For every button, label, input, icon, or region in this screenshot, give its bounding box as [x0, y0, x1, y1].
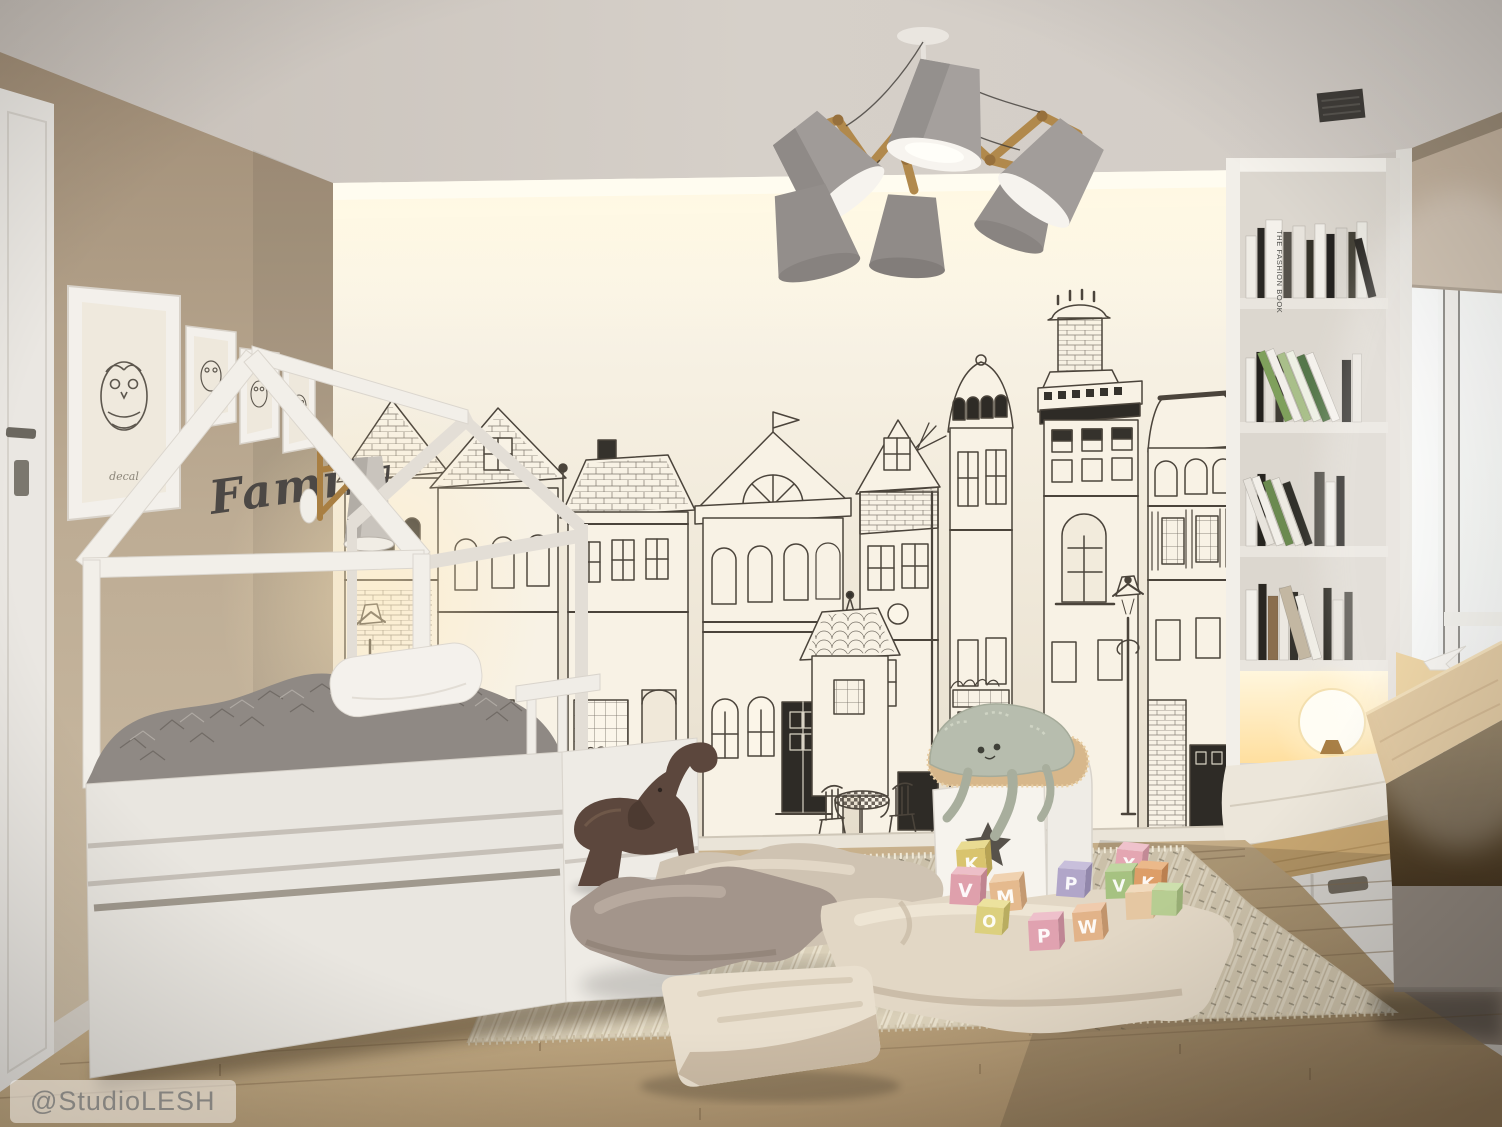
watermark-badge: @StudioLESH	[10, 1080, 236, 1123]
kids-bedroom-render: { "scene": { "type": "interior-render", …	[0, 0, 1502, 1127]
scene-canvas: decal Family	[0, 0, 1502, 1127]
vignette	[0, 0, 1502, 1127]
watermark-text: @StudioLESH	[30, 1086, 216, 1116]
book-spine-title: THE FASHION BOOK	[1275, 230, 1284, 313]
